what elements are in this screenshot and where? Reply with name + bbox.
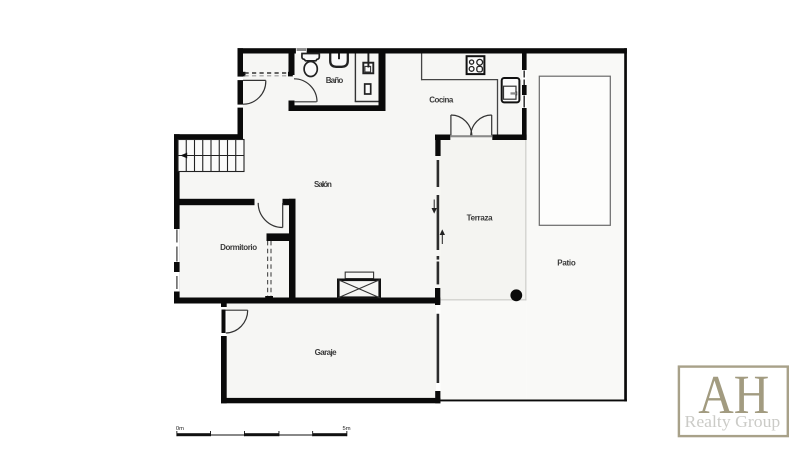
svg-text:5m: 5m	[343, 426, 351, 432]
svg-text:Terraza: Terraza	[467, 213, 494, 222]
svg-text:Baño: Baño	[326, 76, 344, 85]
svg-text:Patio: Patio	[557, 259, 576, 268]
svg-text:Salón: Salón	[314, 180, 332, 189]
svg-text:Dormitorio: Dormitorio	[220, 243, 257, 252]
svg-text:0m: 0m	[176, 426, 184, 432]
svg-text:Garaje: Garaje	[315, 348, 338, 357]
svg-text:Cocina: Cocina	[429, 96, 454, 105]
svg-text:Realty Group: Realty Group	[685, 412, 781, 431]
